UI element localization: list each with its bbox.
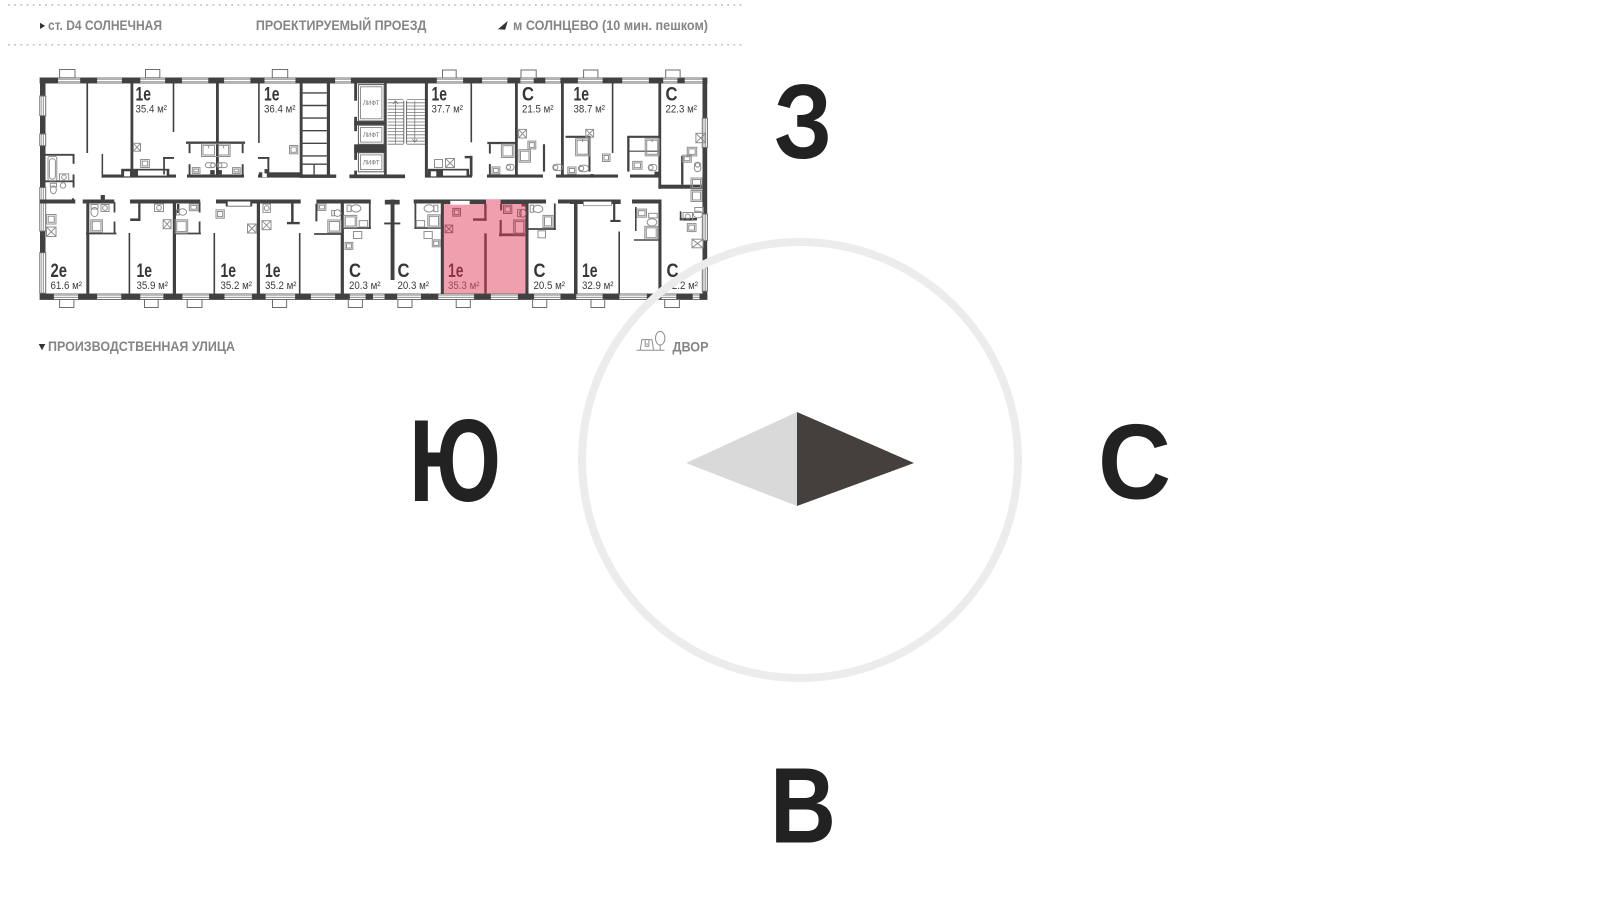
svg-text:ЛИФТ: ЛИФТ <box>363 132 380 139</box>
svg-text:ДВОР: ДВОР <box>673 340 709 355</box>
svg-text:35.3 м²: 35.3 м² <box>448 280 480 292</box>
svg-text:1е: 1е <box>137 260 153 282</box>
svg-text:С: С <box>349 260 361 282</box>
svg-text:1е: 1е <box>264 84 280 106</box>
svg-text:1е: 1е <box>582 260 598 282</box>
svg-text:1е: 1е <box>136 84 152 106</box>
svg-text:С: С <box>666 84 678 106</box>
svg-text:ПРОИЗВОДСТВЕННАЯ УЛИЦА: ПРОИЗВОДСТВЕННАЯ УЛИЦА <box>48 338 235 354</box>
svg-text:С: С <box>522 84 534 106</box>
svg-text:21.5 м²: 21.5 м² <box>522 104 554 116</box>
svg-text:ст. D4 СОЛНЕЧНАЯ: ст. D4 СОЛНЕЧНАЯ <box>48 17 162 33</box>
svg-text:1е: 1е <box>448 260 464 282</box>
svg-text:С: С <box>398 260 410 282</box>
svg-text:61.6 м²: 61.6 м² <box>51 280 83 292</box>
svg-text:С: С <box>534 260 546 282</box>
svg-text:35.2 м²: 35.2 м² <box>221 280 253 292</box>
svg-text:1е: 1е <box>574 84 590 106</box>
svg-text:Ю: Ю <box>409 395 501 526</box>
svg-text:35.4 м²: 35.4 м² <box>136 104 168 116</box>
svg-text:20.3 м²: 20.3 м² <box>398 280 430 292</box>
svg-text:1е: 1е <box>221 260 237 282</box>
svg-text:35.2 м²: 35.2 м² <box>265 280 297 292</box>
svg-text:С: С <box>1098 402 1171 522</box>
svg-text:20.3 м²: 20.3 м² <box>349 280 381 292</box>
svg-text:35.9 м²: 35.9 м² <box>137 280 169 292</box>
svg-text:22.3 м²: 22.3 м² <box>666 104 698 116</box>
svg-text:ПРОЕКТИРУЕМЫЙ ПРОЕЗД: ПРОЕКТИРУЕМЫЙ ПРОЕЗД <box>256 16 427 33</box>
svg-text:ЛИФТ: ЛИФТ <box>363 159 380 166</box>
svg-text:20.5 м²: 20.5 м² <box>534 280 566 292</box>
svg-text:32.9 м²: 32.9 м² <box>582 280 614 292</box>
svg-text:м СОЛНЦЕВО (10 мин. пешком): м СОЛНЦЕВО (10 мин. пешком) <box>513 17 708 33</box>
svg-text:37.7 м²: 37.7 м² <box>432 104 464 116</box>
svg-text:З: З <box>774 63 832 181</box>
svg-text:ЛИФТ: ЛИФТ <box>363 100 380 107</box>
svg-text:1е: 1е <box>432 84 448 106</box>
svg-text:38.7 м²: 38.7 м² <box>574 104 606 116</box>
svg-text:В: В <box>770 745 836 866</box>
svg-text:1е: 1е <box>265 260 281 282</box>
svg-text:2е: 2е <box>51 260 68 282</box>
svg-text:36.4 м²: 36.4 м² <box>264 104 296 116</box>
